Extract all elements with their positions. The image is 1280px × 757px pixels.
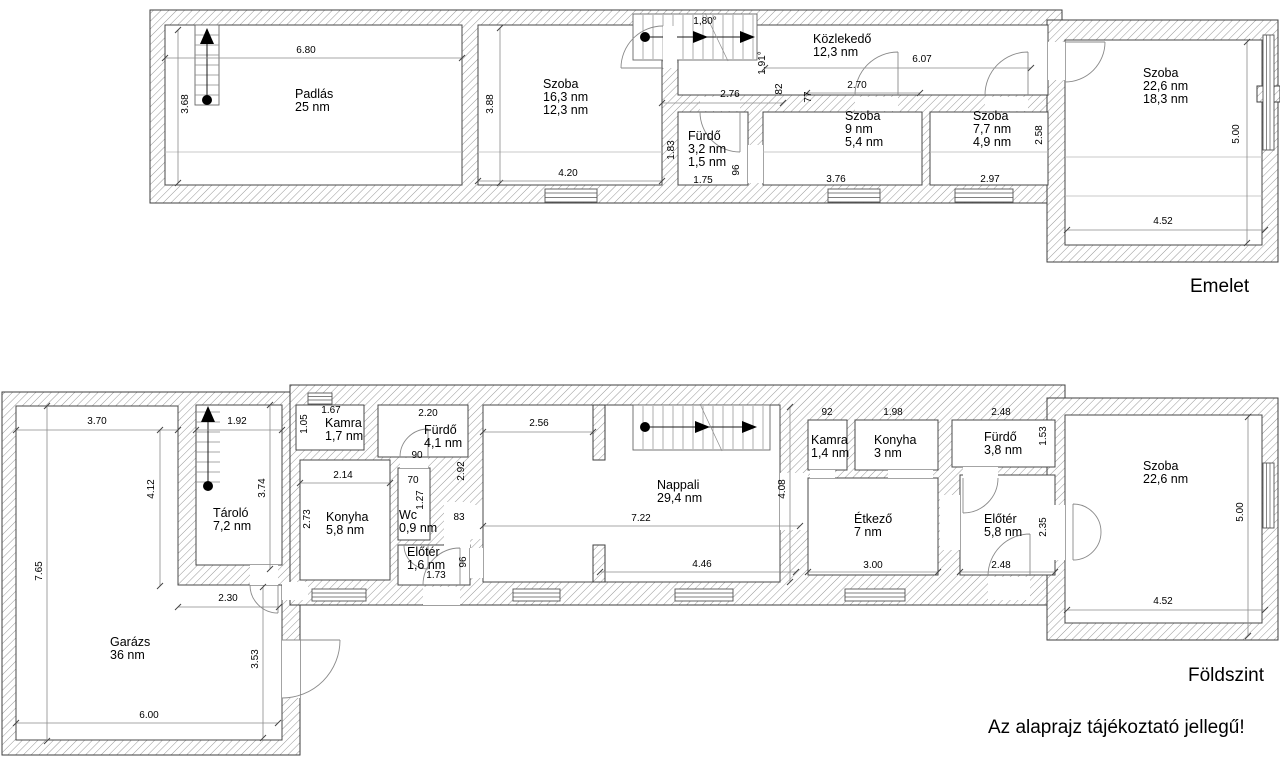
dimension-label: 6.07	[912, 55, 931, 65]
dimension-label: 4.52	[1153, 217, 1172, 227]
dimension-label: 1,80°	[693, 17, 716, 27]
floorplan-canvas: Emelet Földszint Az alaprajz tájékoztató…	[0, 0, 1280, 757]
dimension-label: 1.53	[1039, 426, 1049, 445]
room-label: Konyha3 nm	[874, 434, 916, 460]
dimension-label: 4.46	[692, 560, 711, 570]
dimension-label: 4.20	[558, 169, 577, 179]
dimension-label: 2.73	[303, 509, 313, 528]
dimension-label: 3.74	[258, 478, 268, 497]
dimension-label: 92	[821, 408, 832, 418]
dimension-label: 1.67	[321, 406, 340, 416]
room-label: Előtér1,6 nm	[407, 546, 445, 572]
dimension-label: 1.73	[426, 571, 445, 581]
room-label: Szoba7,7 nm4,9 nm	[973, 110, 1011, 149]
dimension-label: 3.68	[181, 94, 191, 113]
dimension-label: 96	[732, 164, 742, 175]
room-label: Garázs36 nm	[110, 636, 150, 662]
floor-label-foldszint: Földszint	[1188, 665, 1264, 687]
dimension-label: 70	[407, 476, 418, 486]
dimension-label: 1.98	[883, 408, 902, 418]
dimension-label: 2.70	[847, 81, 866, 91]
room-label: Fürdő3,8 nm	[984, 431, 1022, 457]
dimension-label: 2.14	[333, 471, 352, 481]
dimension-label: 2.35	[1039, 517, 1049, 536]
room-label: Szoba22,6 nm	[1143, 460, 1188, 486]
dimension-label: 77	[804, 91, 814, 102]
room-label: Szoba22,6 nm18,3 nm	[1143, 67, 1188, 106]
dimension-label: 2.97	[980, 175, 999, 185]
dimension-label: 1.91°	[758, 51, 768, 74]
dimension-label: 3.53	[251, 649, 261, 668]
dimension-label: 83	[453, 513, 464, 523]
dimension-label: 1.92	[227, 417, 246, 427]
room-label: Közlekedő12,3 nm	[813, 33, 871, 59]
dimension-label: 2.58	[1035, 125, 1045, 144]
dimension-label: 90	[411, 451, 422, 461]
dimension-label: 5.00	[1236, 502, 1246, 521]
dimension-label: 1.05	[300, 414, 310, 433]
room-label: Fürdő4,1 nm	[424, 424, 462, 450]
dimension-label: 2.30	[218, 594, 237, 604]
room-label: Étkező7 nm	[854, 513, 892, 539]
floor-label-emelet: Emelet	[1190, 276, 1249, 298]
dimension-label: 4.52	[1153, 597, 1172, 607]
dimension-lines	[0, 0, 1280, 757]
room-label: Fürdő3,2 nm1,5 nm	[688, 130, 726, 169]
disclaimer-note: Az alaprajz tájékoztató jellegű!	[988, 717, 1245, 739]
dimension-label: 3.70	[87, 417, 106, 427]
room-label: Szoba16,3 nm12,3 nm	[543, 78, 588, 117]
dimension-label: 2.48	[991, 561, 1010, 571]
dimension-label: 7.22	[631, 514, 650, 524]
dimension-label: 3.76	[826, 175, 845, 185]
dimension-label: 2.92	[457, 461, 467, 480]
room-label: Nappali29,4 nm	[657, 479, 702, 505]
dimension-label: 2.48	[991, 408, 1010, 418]
room-label: Konyha5,8 nm	[326, 511, 368, 537]
dimension-label: 6.80	[296, 46, 315, 56]
room-label: Padlás25 nm	[295, 88, 333, 114]
dimension-label: 3.00	[863, 561, 882, 571]
dimension-label: 96	[459, 556, 469, 567]
dimension-label: 1.75	[693, 176, 712, 186]
room-label: Szoba9 nm5,4 nm	[845, 110, 883, 149]
dimension-label: 4.12	[147, 479, 157, 498]
dimension-label: 1.27	[416, 490, 426, 509]
room-label: Tároló7,2 nm	[213, 507, 251, 533]
room-label: Kamra1,7 nm	[325, 417, 363, 443]
room-label: Wc0,9 nm	[399, 509, 437, 535]
dimension-label: 2.56	[529, 419, 548, 429]
room-label: Előtér5,8 nm	[984, 513, 1022, 539]
dimension-label: 4.08	[778, 479, 788, 498]
dimension-label: 1.83	[667, 140, 677, 159]
dimension-label: 3.88	[486, 94, 496, 113]
room-label: Kamra1,4 nm	[811, 434, 849, 460]
dimension-label: 82	[775, 83, 785, 94]
dimension-label: 2.20	[418, 409, 437, 419]
dimension-label: 7.65	[35, 561, 45, 580]
dimension-label: 2.76	[720, 90, 739, 100]
dimension-label: 5.00	[1232, 124, 1242, 143]
dimension-label: 6.00	[139, 711, 158, 721]
